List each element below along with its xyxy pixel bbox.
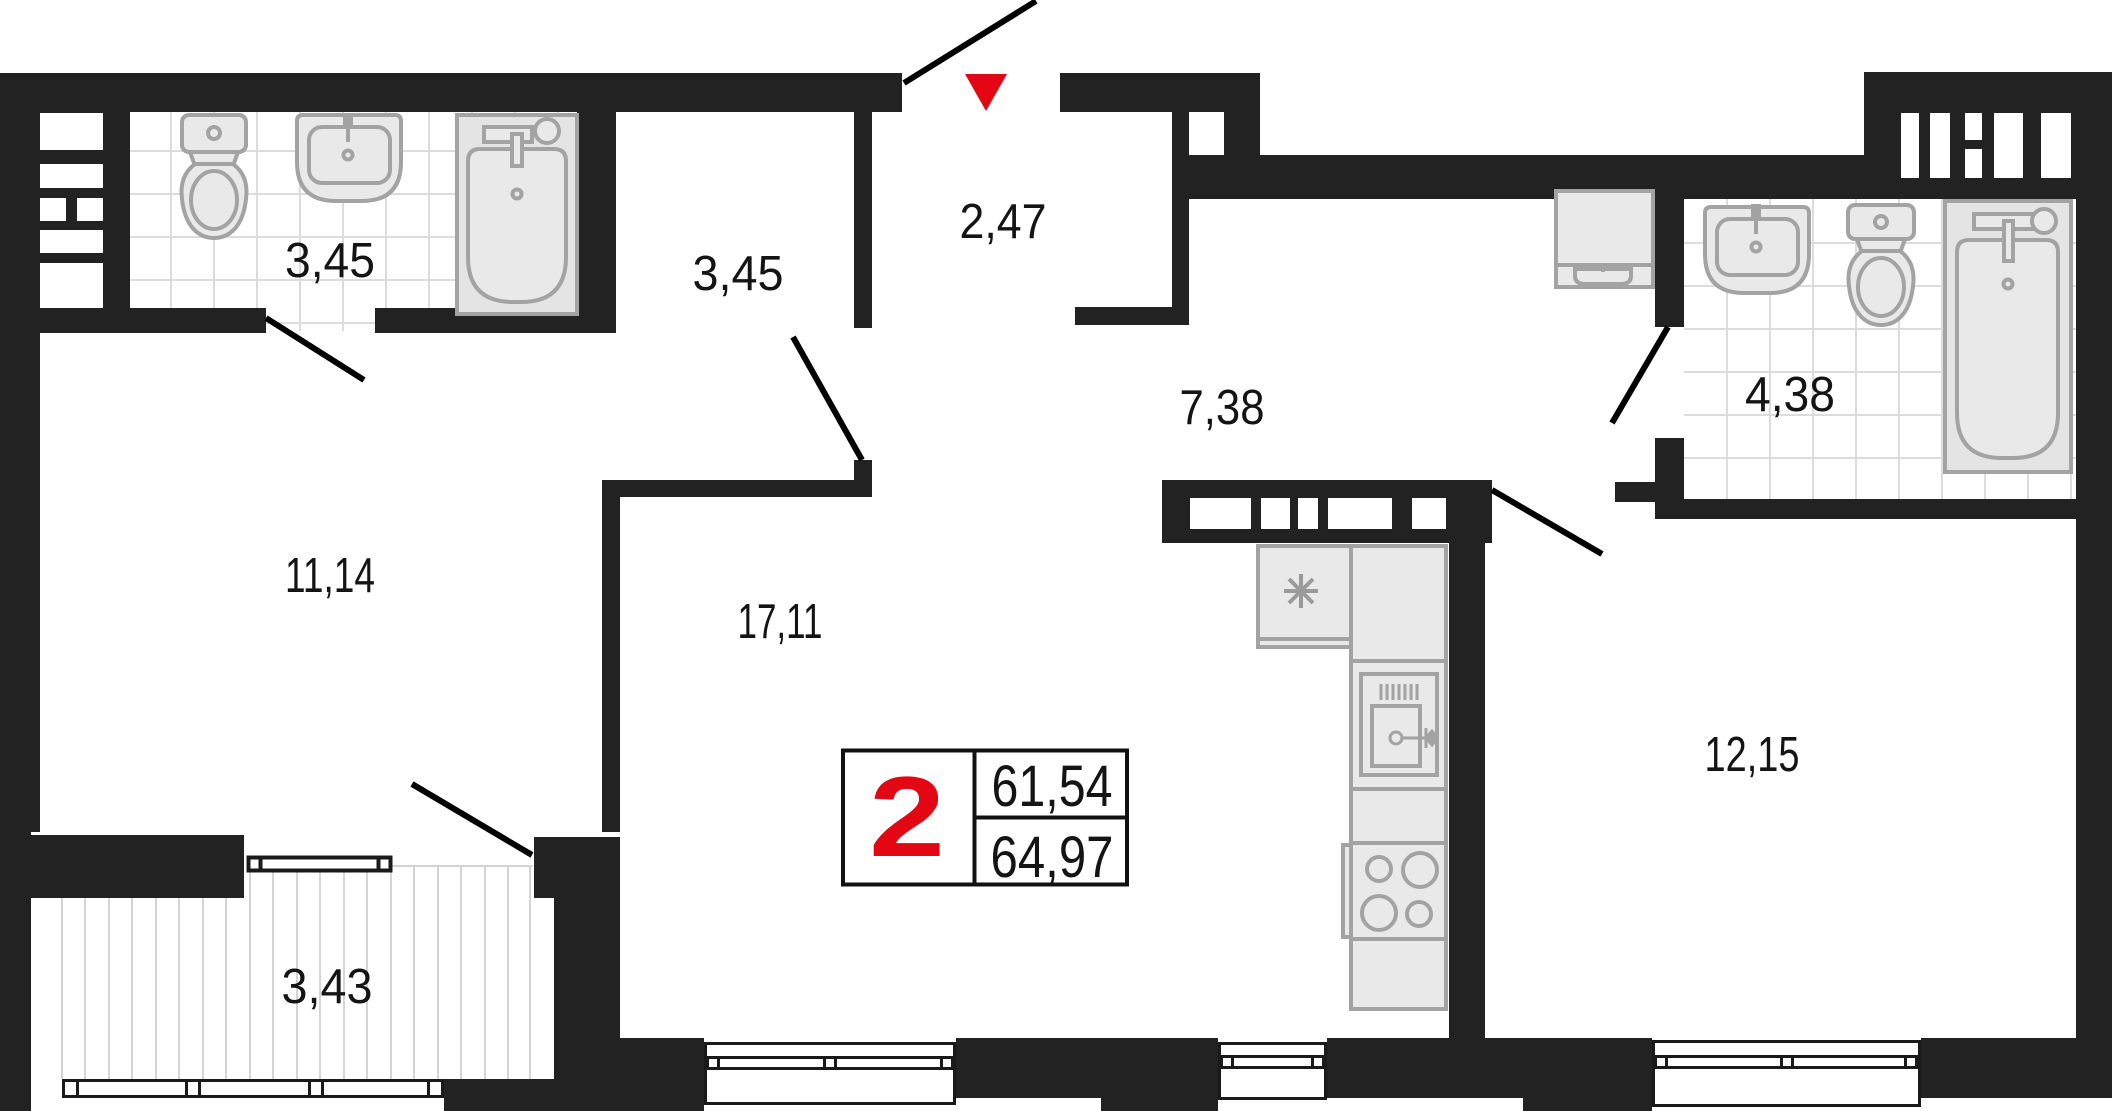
svg-text:7,38: 7,38	[1180, 381, 1265, 435]
svg-text:3,45: 3,45	[285, 234, 375, 288]
svg-text:11,14: 11,14	[285, 549, 375, 603]
svg-text:3,43: 3,43	[282, 960, 373, 1014]
svg-text:61,54: 61,54	[992, 754, 1113, 819]
svg-text:2: 2	[869, 753, 945, 881]
svg-text:2,47: 2,47	[960, 195, 1047, 249]
svg-text:17,11: 17,11	[738, 595, 823, 649]
svg-text:3,45: 3,45	[693, 247, 784, 301]
svg-text:4,38: 4,38	[1745, 368, 1835, 422]
svg-text:12,15: 12,15	[1705, 728, 1800, 782]
svg-text:64,97: 64,97	[991, 825, 1114, 890]
